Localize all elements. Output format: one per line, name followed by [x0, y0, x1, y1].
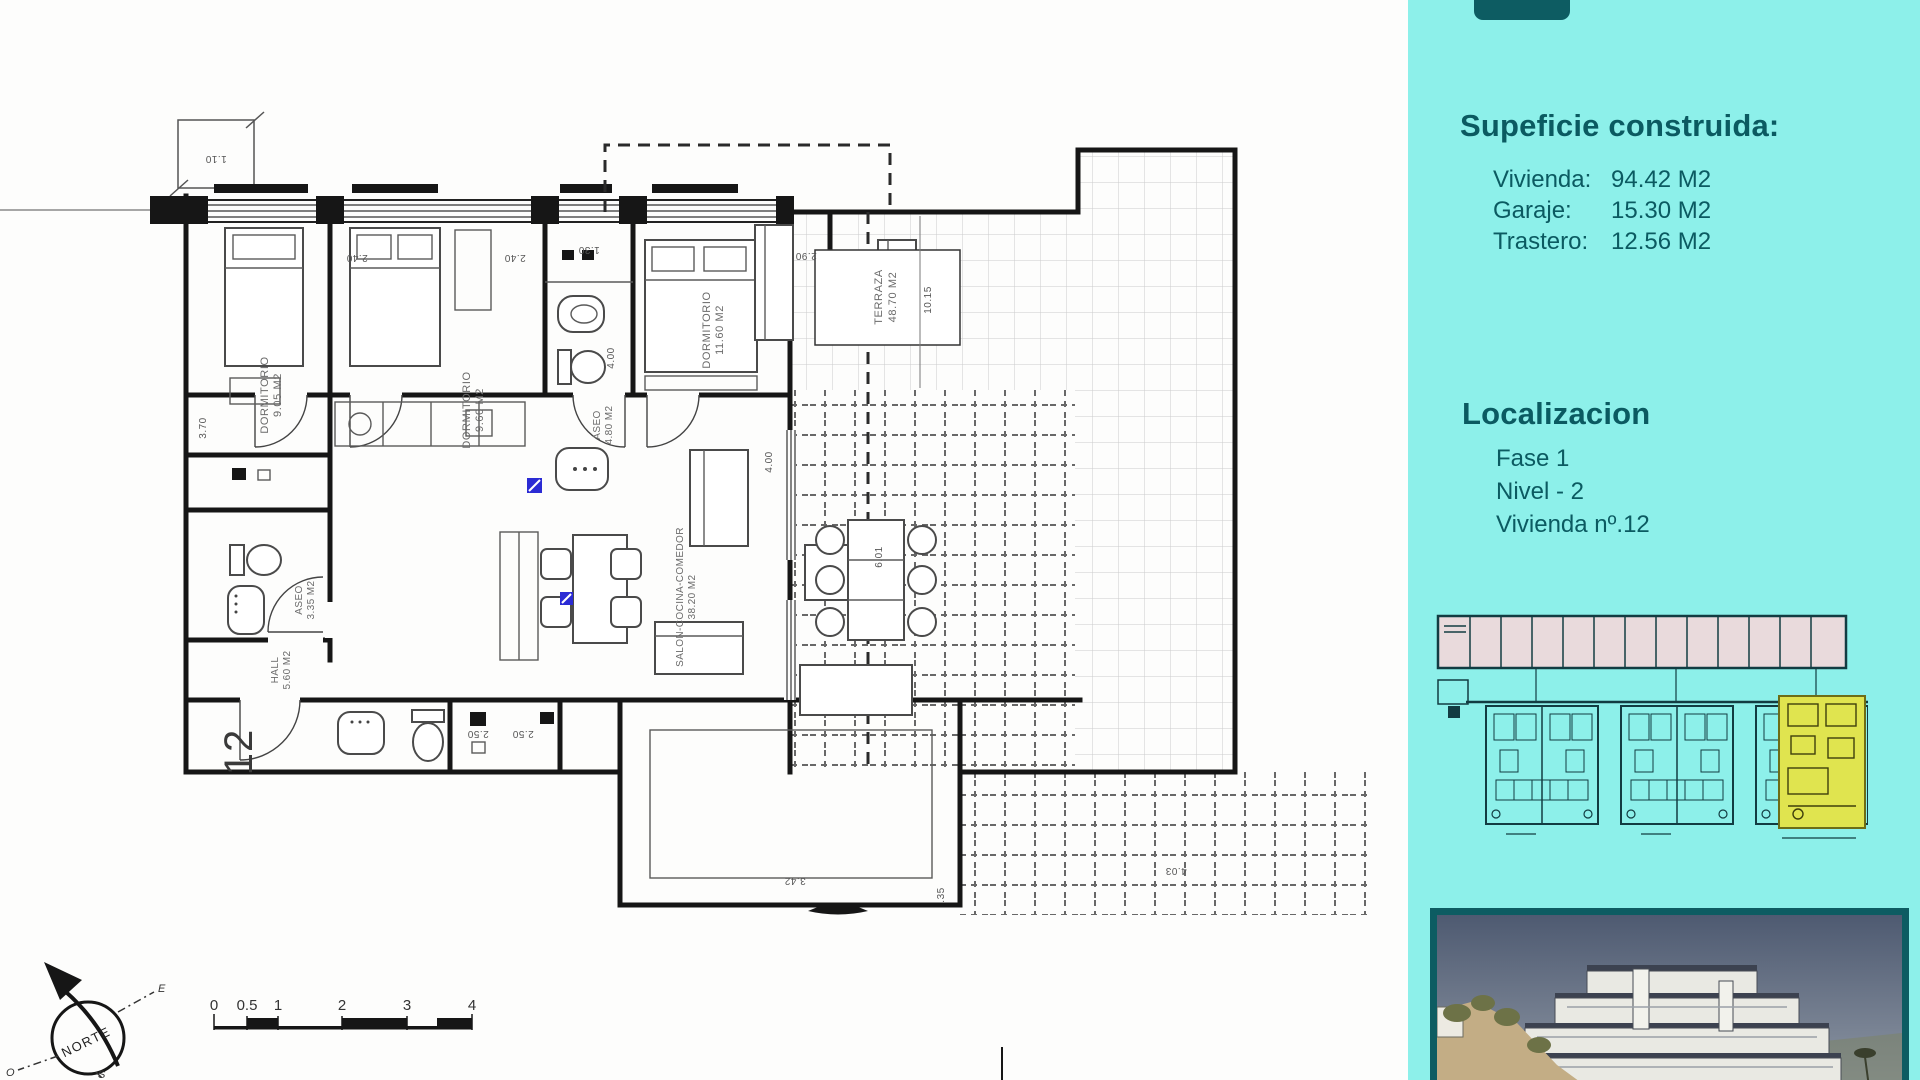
area-hall: 5.60 M2: [282, 650, 293, 689]
area-terraza: 48.70 M2: [887, 272, 899, 323]
scale-bar: 0 0.5 1 2 3 4: [210, 997, 476, 1030]
salon-sofas: [655, 450, 748, 674]
compass-east: E: [158, 983, 166, 995]
label-salon: SALON-COCINA-COMEDOR: [675, 527, 686, 667]
area-aseo-1: 4.80 M2: [604, 405, 615, 444]
dim-0-35: .35: [936, 887, 947, 902]
logo-fragment: [1474, 0, 1570, 20]
label-terraza: TERRAZA: [873, 269, 885, 325]
area-salon: 38.20 M2: [687, 575, 698, 620]
label-aseo-1: ASEO: [592, 410, 603, 439]
info-sidebar: Supeficie construida: Vivienda: 94.42 M2…: [1408, 0, 1920, 1080]
area-dormitorio-2: 9.60 M2: [474, 388, 486, 432]
label-dormitorio-2: DORMITORIO: [461, 371, 473, 448]
location-vivienda: Vivienda nº.12: [1496, 508, 1650, 541]
floor-plan-area: 1.10: [0, 0, 1408, 1080]
dim-1-30: 1.30: [578, 244, 599, 255]
surface-value: 94.42 M2: [1611, 164, 1711, 195]
surface-row-garaje: Garaje: 15.30 M2: [1493, 195, 1711, 226]
label-hall: HALL: [270, 657, 281, 684]
surface-list: Vivienda: 94.42 M2 Garaje: 15.30 M2 Tras…: [1493, 164, 1711, 257]
scale-05: 0.5: [237, 997, 258, 1014]
bathroom-fixtures-top: [545, 250, 633, 384]
surface-value: 15.30 M2: [1611, 195, 1711, 226]
area-dormitorio-3: 11.60 M2: [714, 305, 726, 355]
surface-label: Trastero:: [1493, 226, 1611, 257]
dim-2-90: 2.90: [795, 250, 816, 261]
dim-4-00-a: 4.00: [606, 347, 617, 368]
site-plan: [1436, 610, 1868, 852]
area-dormitorio-1: 9.05 M2: [272, 373, 284, 417]
label-dormitorio-3: DORMITORIO: [701, 291, 713, 368]
scale-2: 2: [338, 997, 346, 1014]
surface-row-vivienda: Vivienda: 94.42 M2: [1493, 164, 1711, 195]
dim-6-01: 6.01: [874, 546, 885, 567]
dim-3-70: 3.70: [198, 417, 209, 438]
label-dormitorio-1: DORMITORIO: [259, 356, 271, 433]
dim-2-50-b: 2.50: [512, 728, 533, 739]
blue-markers: [527, 478, 573, 605]
location-fase: Fase 1: [1496, 442, 1650, 475]
surface-label: Vivienda:: [1493, 164, 1611, 195]
unit-number: 12: [217, 729, 261, 776]
dim-3-42: 3.42: [784, 875, 805, 886]
dim-2-40-a: 2.40: [346, 252, 367, 263]
scale-4: 4: [468, 997, 476, 1014]
outdoor-dining-set: [816, 520, 936, 640]
dim-4-00-b: 4.00: [764, 451, 775, 472]
top-wall-windows: [150, 184, 794, 224]
compass-rose: NORTE E O S: [6, 962, 166, 1080]
page: 1.10: [0, 0, 1920, 1080]
dining-set: [541, 535, 641, 643]
highlighted-unit: [1779, 696, 1865, 828]
location-list: Fase 1 Nivel - 2 Vivienda nº.12: [1496, 442, 1650, 541]
label-aseo-2: ASEO: [294, 585, 305, 614]
floor-plan-drawing: 1.10: [0, 0, 1408, 1080]
area-aseo-2: 3.35 M2: [306, 580, 317, 619]
surface-row-trastero: Trastero: 12.56 M2: [1493, 226, 1711, 257]
dim-2-40-b: 2.40: [504, 252, 525, 263]
dimension-box: 1.10: [170, 112, 264, 196]
surface-label: Garaje:: [1493, 195, 1611, 226]
scale-0: 0: [210, 997, 218, 1014]
development-photo: [1430, 908, 1909, 1080]
dim-4-03: 4.03: [1165, 865, 1186, 876]
scale-3: 3: [403, 997, 411, 1014]
dim-2-50-a: 2.50: [467, 728, 488, 739]
compass-west: O: [6, 1067, 15, 1079]
location-nivel: Nivel - 2: [1496, 475, 1650, 508]
dim-1-10: 1.10: [205, 153, 226, 164]
compass-south: S: [98, 1069, 106, 1080]
location-title: Localizacion: [1462, 396, 1650, 432]
scale-1: 1: [274, 997, 282, 1014]
surface-value: 12.56 M2: [1611, 226, 1711, 257]
surface-title: Supeficie construida:: [1460, 108, 1779, 144]
bed-dorm2: [350, 228, 491, 366]
dim-10-15: 10.15: [923, 286, 934, 314]
site-plan-unit-block: [1486, 706, 1598, 824]
